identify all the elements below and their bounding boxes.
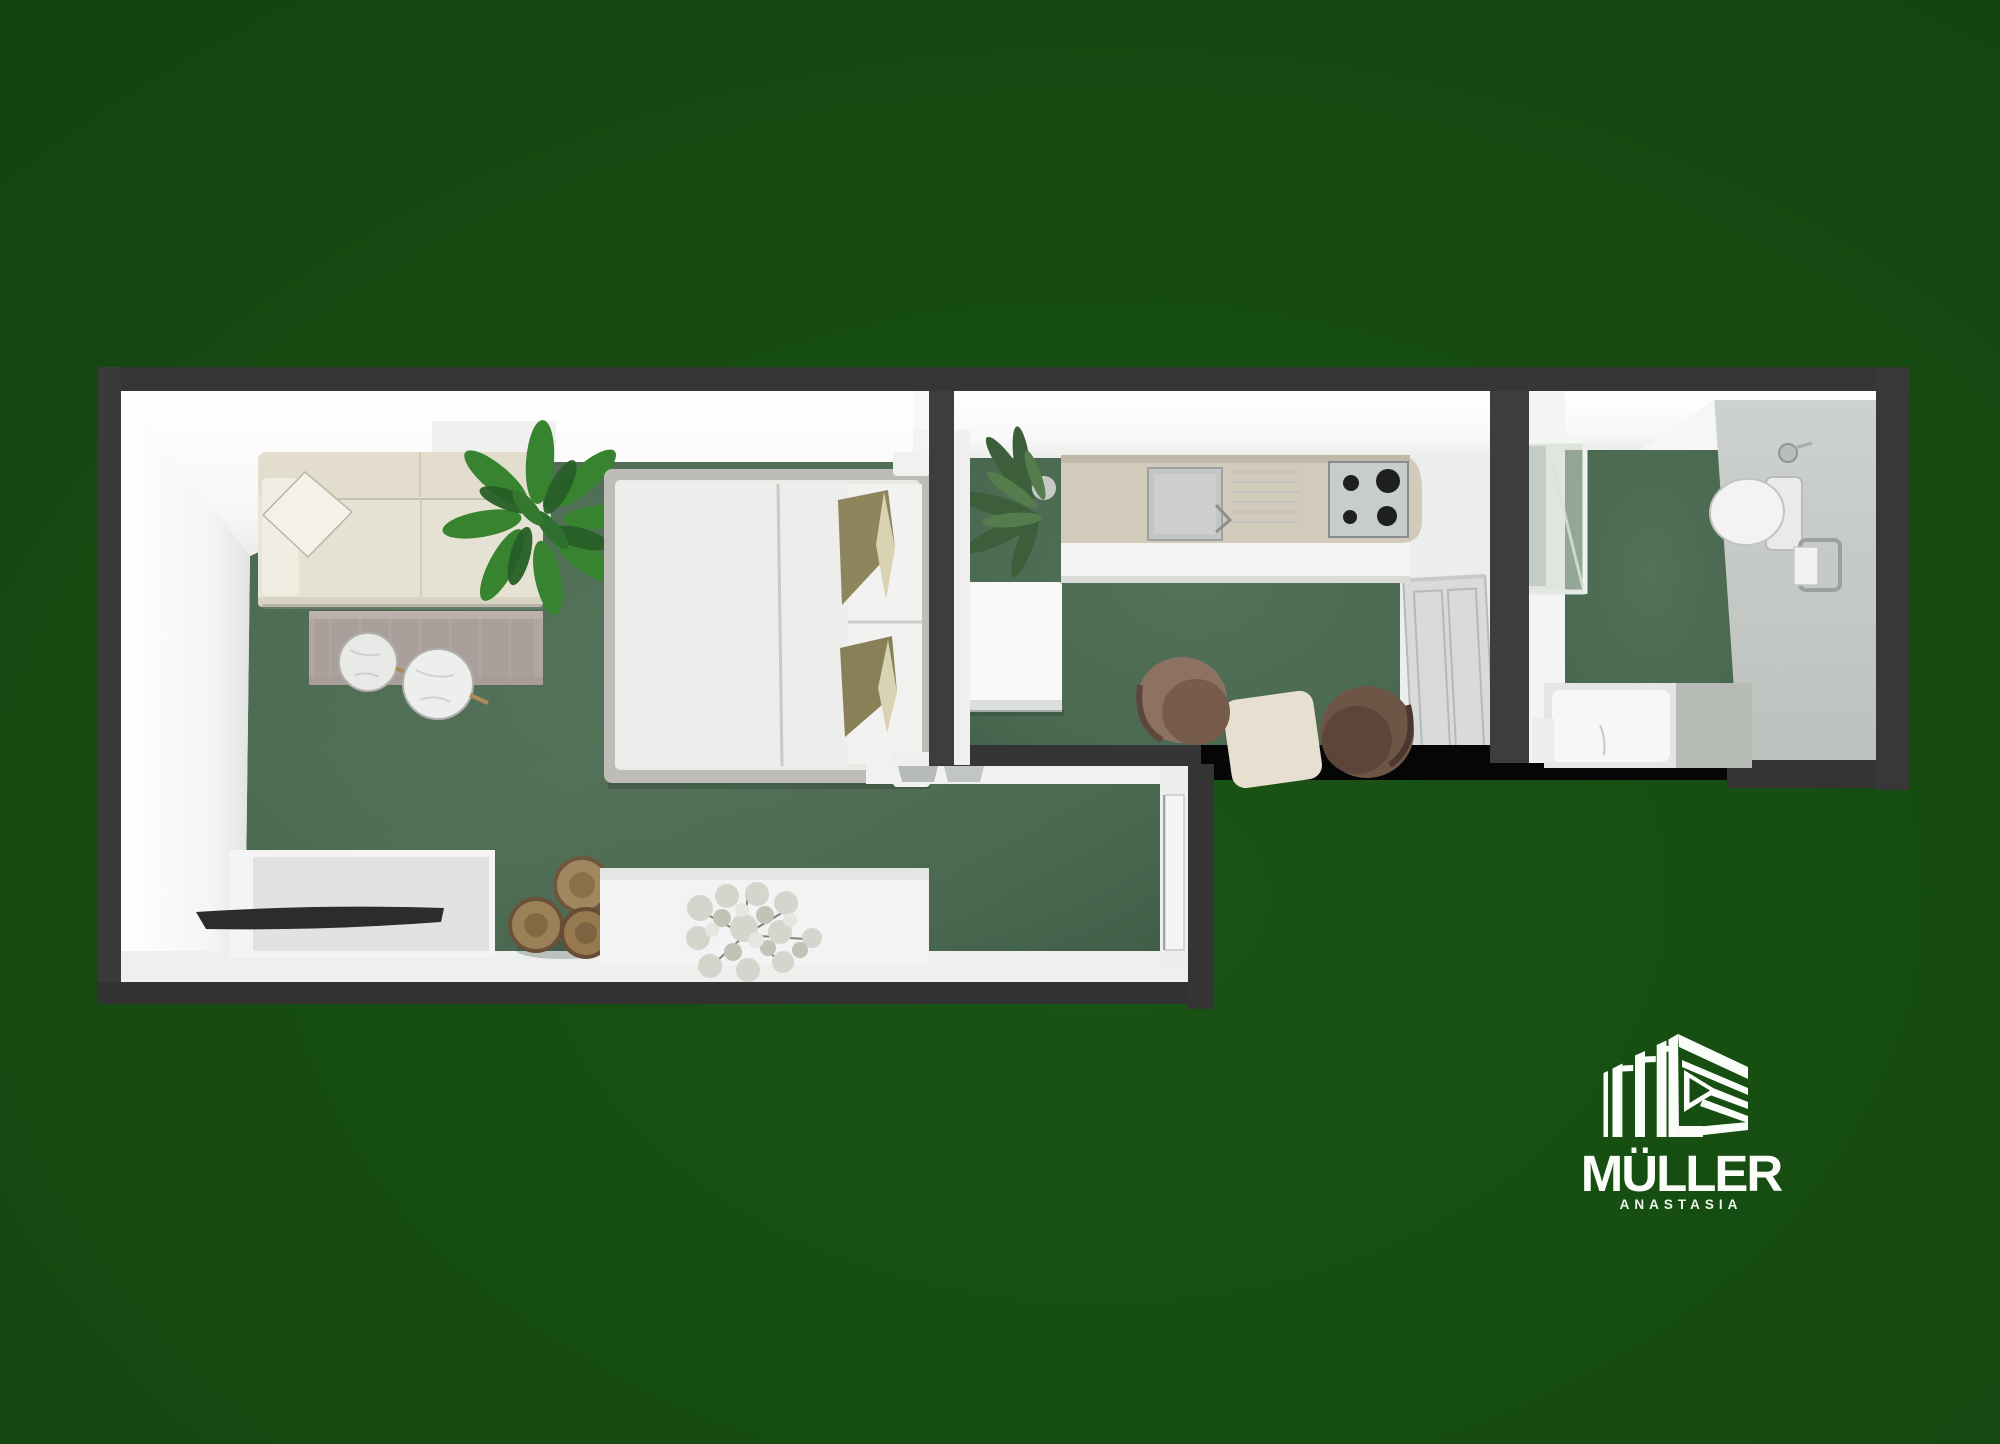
- svg-text:ANASTASIA: ANASTASIA: [1620, 1197, 1743, 1212]
- svg-text:MÜLLER: MÜLLER: [1581, 1145, 1783, 1202]
